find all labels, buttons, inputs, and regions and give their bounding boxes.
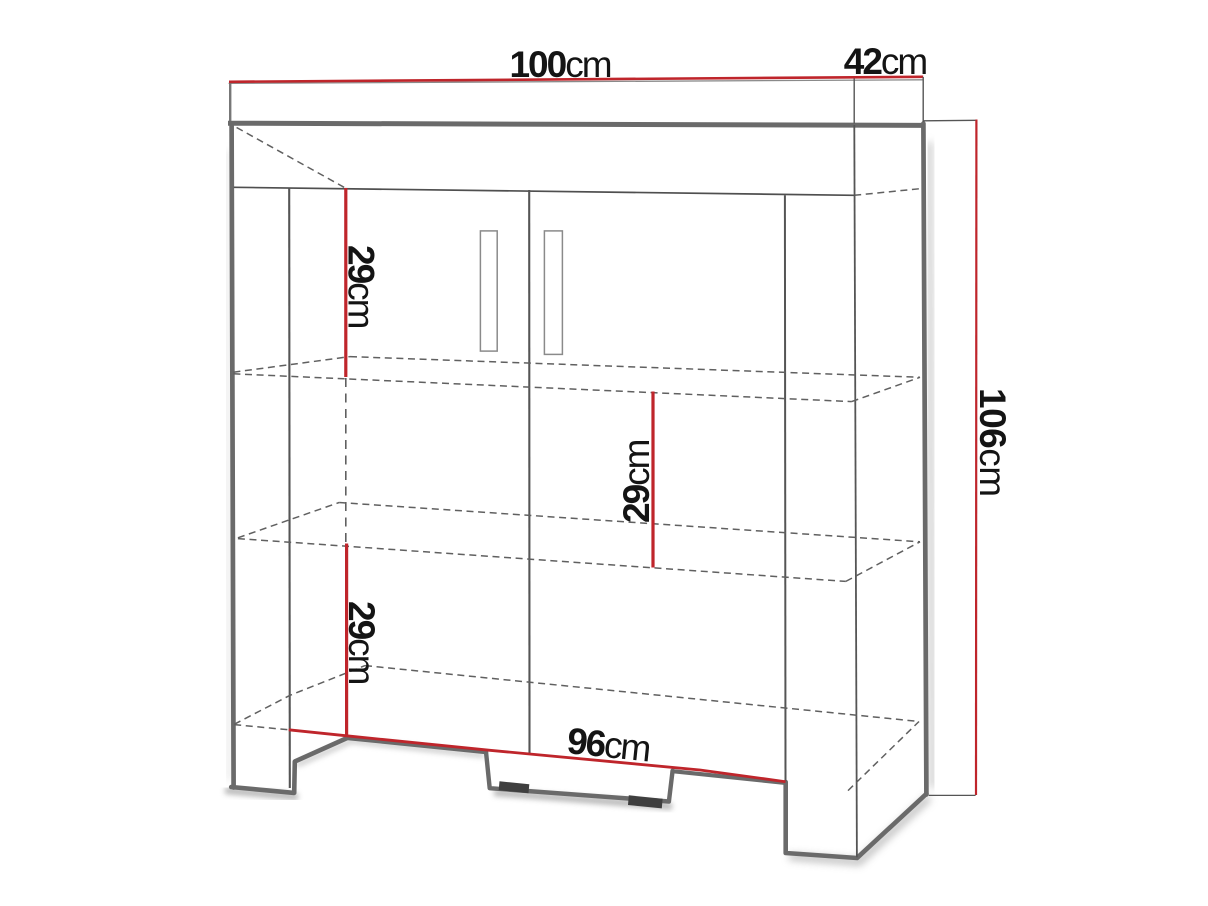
svg-text:106cm: 106cm — [972, 388, 1013, 497]
svg-text:42cm: 42cm — [844, 41, 927, 82]
svg-text:29cm: 29cm — [616, 440, 657, 523]
svg-text:96cm: 96cm — [565, 720, 651, 769]
svg-text:29cm: 29cm — [341, 245, 382, 328]
svg-text:29cm: 29cm — [341, 601, 382, 684]
svg-text:100cm: 100cm — [509, 44, 610, 85]
